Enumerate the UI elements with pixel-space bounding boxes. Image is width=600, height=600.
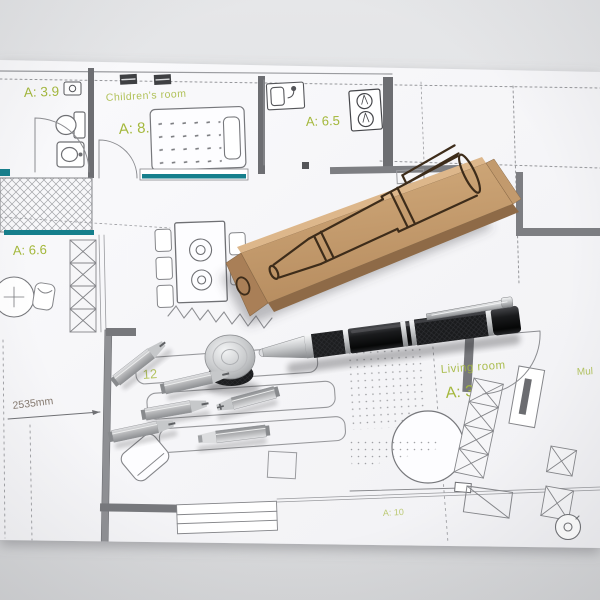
product-photo-scene: A: 3.9 Children's room A: 8.3 <box>0 0 600 600</box>
photo-vignette <box>0 0 600 600</box>
photo-canvas: A: 3.9 Children's room A: 8.3 <box>0 0 600 600</box>
